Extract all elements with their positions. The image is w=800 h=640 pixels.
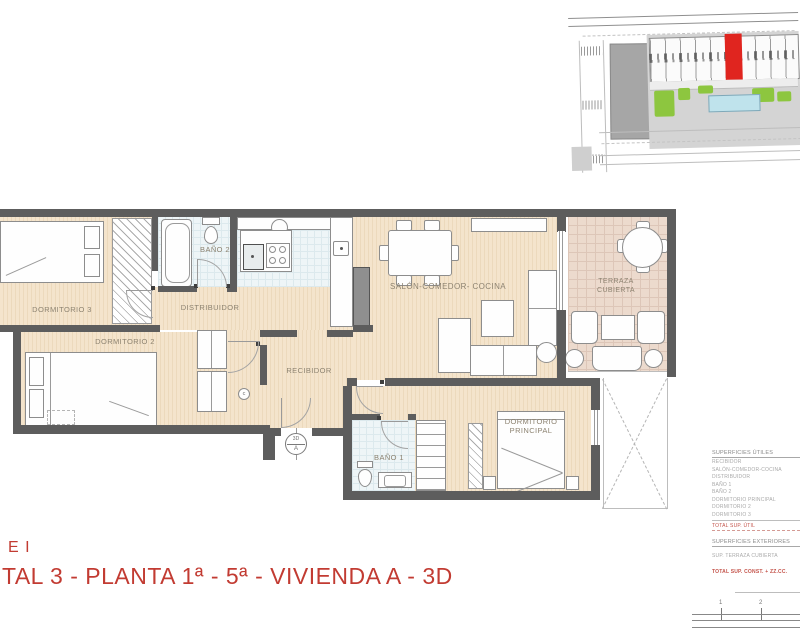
void-edge [603,508,668,509]
closet [197,330,227,369]
room-label-principal: DORMITORIO PRINCIPAL [494,417,568,435]
terrace-pouf [644,349,663,368]
street-edge [600,150,800,156]
wall [343,386,352,500]
wall [158,286,197,292]
wall [230,216,237,290]
c-marker-label: c [239,391,249,397]
garden-area [678,88,690,100]
wall [557,209,566,232]
wall [260,345,267,385]
marker-divider [287,444,305,445]
neighbor-building [610,43,651,139]
wall [385,378,600,386]
legend-item: DORMITORIO 2 [712,504,751,510]
wall [591,378,600,410]
door-jamb [377,416,381,420]
wall [353,325,373,332]
room-label-salon: SALÓN-COMEDOR- COCINA [390,282,506,291]
tv-sideboard [471,218,547,232]
terrace-coffee-table [601,315,635,340]
bed-bench [47,410,75,425]
vanity-basin [384,475,406,487]
bed-dormitorio2 [25,352,157,426]
legend-item: DORMITORIO 3 [712,512,751,518]
window-line [594,410,595,445]
wall [667,209,676,377]
legend-utiles-header: SUPERFICIES ÚTILES [712,450,800,458]
wall [352,414,380,420]
wall [591,445,600,500]
burner [279,257,286,264]
legend-item: SUP. TERRAZA CUBIERTA [712,553,778,559]
room-label-dormitorio3: DORMITORIO 3 [32,305,92,314]
burner [279,246,286,253]
camera-marker-top-label: 3D [286,436,306,442]
pillow [84,254,100,277]
scale-line [692,614,800,615]
wall [260,330,297,337]
terrace-armchair [637,311,665,344]
garden-area [777,91,791,101]
terrace-pouf [565,349,584,368]
floorplan-sheet: { "title_block": { "line1": "E I", "line… [0,0,800,640]
room-label-recibidor: RECIBIDOR [286,366,331,375]
scale-line [692,627,800,628]
terrace-armchair [571,311,598,344]
road-line [568,20,798,27]
camera-view-marker: 3D A [285,433,307,455]
highlighted-unit [725,33,743,79]
room-label-bano2: BAÑO 2 [200,245,230,254]
chaise-longue [438,318,471,373]
site-plan-group [568,3,800,173]
window-line [597,410,598,445]
site-plan [570,6,800,170]
side-pouf [536,342,557,363]
door-leaf [126,290,153,291]
wall [270,428,281,436]
closet [197,371,227,412]
sofa-cushion-line [503,346,504,375]
pillow [29,357,44,386]
wall [408,414,416,420]
legend-item: BAÑO 2 [712,489,732,495]
terrace-round-table [622,227,663,268]
dining-table [388,230,452,276]
title-line1: E I [8,539,31,557]
swimming-pool [708,94,760,112]
basin-drain [251,255,254,258]
window-line [559,231,560,310]
door-leaf [281,398,282,428]
coffee-table [481,300,514,337]
wall [557,310,566,380]
room-label-terraza: TERRAZA CUBIERTA [590,277,642,295]
legend-item: DORMITORIO PRINCIPAL [712,497,776,503]
void-edge [603,378,604,509]
wall [0,209,676,217]
legend-item: BAÑO 1 [712,482,732,488]
road-line [568,12,798,19]
scale-line [692,620,800,621]
legend-item: DISTRIBUIDOR [712,474,750,480]
title-line2: TAL 3 - PLANTA 1ª - 5ª - VIVIENDA A - 3D [2,563,453,590]
room-label-distribuidor: DISTRIBUIDOR [181,303,240,312]
scale-tick-label-1: 1 [719,600,722,606]
closet-bano1 [416,420,446,491]
legend-exteriores-header: SUPERFICIES EXTERIORES [712,539,800,547]
garden-area [698,85,713,93]
terrace-edge-line [568,371,667,372]
door-leaf [197,259,198,287]
sidewalk-line [600,159,800,165]
door-leaf [381,421,408,422]
room-label-dormitorio2: DORMITORIO 2 [95,337,155,346]
toilet-bowl-bano2 [204,226,218,244]
c-marker: c [238,388,250,400]
marker-tick [296,455,297,460]
scale-tick-label-2: 2 [759,600,762,606]
crosswalk [581,46,602,56]
wall [263,434,275,460]
terrace-bench [592,346,642,371]
toilet-bano2 [202,217,220,225]
wall [347,378,357,386]
camera-marker-bottom-label: A [286,446,306,452]
scale-bar: 1 2 [692,600,800,634]
open-wardrobe-principal [468,423,483,489]
door-jamb [380,380,384,384]
kitchen-counter-right [330,217,353,327]
window-line [562,231,563,310]
nightstand [566,476,579,490]
legend-separator [712,520,800,521]
wall [152,216,158,271]
wall [13,425,270,434]
wall [343,491,600,500]
pillow [29,389,44,418]
crosswalk [582,100,603,110]
pillow [84,226,100,249]
closet-line [211,331,212,368]
wall [0,325,160,332]
burner [269,246,276,253]
sink-drain [340,247,343,250]
door-leaf [228,341,260,342]
bathtub-inner [165,223,190,283]
toilet-bano1 [357,461,373,468]
legend-total-util: TOTAL SUP. ÚTIL [712,523,800,531]
nightstand [483,476,496,490]
legend-total-const: TOTAL SUP. CONST. + ZZ.CC. [712,569,787,575]
sofa-cushion-line [529,308,556,309]
legend-item: SALÓN-COMEDOR-COCINA [712,467,782,473]
room-label-bano1: BAÑO 1 [374,453,404,462]
titleblock-line [735,592,800,593]
garden-area [654,90,675,117]
door-leaf [356,386,383,387]
burner [269,257,276,264]
marker-tick [296,428,297,433]
void-edge [667,378,668,509]
wall [13,325,21,434]
legend-item: RECIBIDOR [712,459,742,465]
wall [327,330,353,337]
corner-block [572,146,593,171]
kitchen-tall-unit [353,267,370,327]
closet-line [211,372,212,411]
